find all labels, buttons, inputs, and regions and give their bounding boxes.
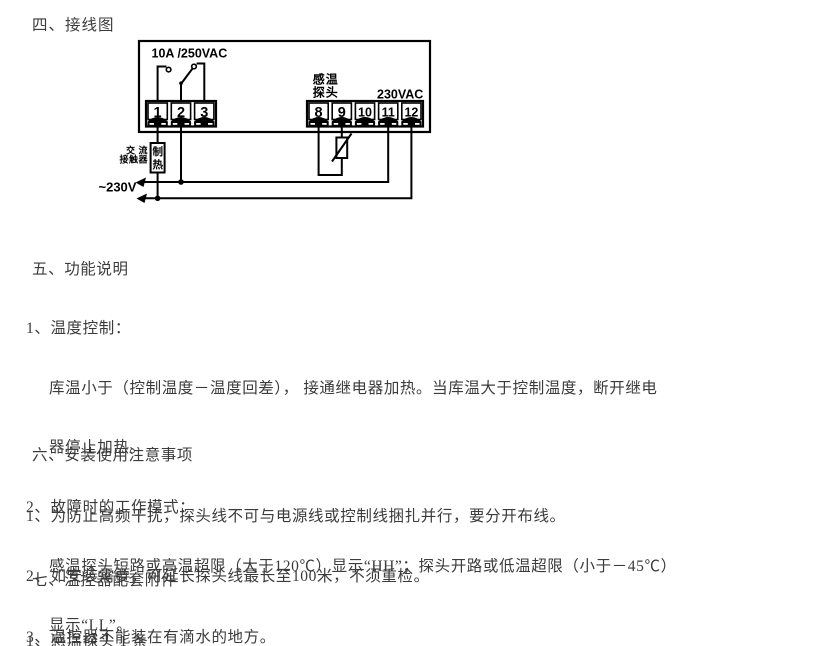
junction-dot — [155, 196, 161, 202]
relay-rating-label: 10A /250VAC — [152, 47, 228, 61]
probe-label-line2: 探头 — [313, 85, 339, 100]
mains-voltage-label: ~230V — [99, 180, 137, 195]
terminal-number: 3 — [200, 105, 208, 121]
terminal-number: 9 — [338, 105, 346, 121]
terminal-number: 12 — [404, 106, 418, 120]
text-line: 库温小于（控制温度－温度回差）， 接通继电器加热。当库温大于控制温度，断开继电 — [0, 377, 817, 400]
text-line: 1、感温探头 1 条 — [0, 630, 817, 646]
terminal-cell: 9 — [332, 103, 352, 126]
terminal-cell: 10 — [355, 103, 375, 126]
contactor-label-line2: 接触器 — [119, 154, 148, 165]
junction-dot — [178, 179, 184, 185]
wire-arrow-icon — [137, 194, 148, 204]
terminal-cell: 3 — [194, 103, 214, 126]
manual-page: 四、接线图 10A /250VAC 感温 探头 230VAC — [0, 0, 817, 646]
terminal-number: 1 — [154, 105, 162, 121]
terminal-number: 11 — [382, 106, 395, 120]
supply-voltage-label: 230VAC — [377, 88, 423, 102]
section-heading: 七、温控器配套附件 — [0, 569, 817, 594]
terminal-cell: 1 — [148, 103, 168, 126]
probe-wiring — [319, 127, 352, 175]
text-line: 1、为防止高频干扰，探头线不可与电源线或控制线捆扎并行，要分开布线。 — [0, 505, 817, 530]
terminal-block-right: 8 9 10 11 — [307, 101, 423, 127]
mains-wiring: 制 热 — [136, 127, 412, 203]
heater-label-char1: 制 — [153, 145, 164, 158]
terminal-block-left: 1 2 3 — [146, 101, 216, 127]
wire-arrow-icon — [136, 178, 147, 188]
terminal-cell: 2 — [171, 103, 191, 126]
heater-label-char2: 热 — [153, 158, 164, 171]
wiring-diagram: 10A /250VAC 感温 探头 230VAC — [0, 0, 460, 215]
terminal-cell: 12 — [401, 103, 421, 126]
terminal-cell: 8 — [309, 103, 329, 126]
terminal-number: 8 — [315, 105, 323, 121]
text-line: 1、温度控制： — [0, 317, 817, 340]
section-heading: 五、功能说明 — [0, 258, 817, 281]
terminal-cell: 11 — [378, 103, 398, 126]
terminal-number: 2 — [177, 105, 185, 121]
terminal-number: 10 — [358, 106, 372, 120]
section-heading: 六、安装使用注意事项 — [0, 444, 817, 469]
section-accessories: 七、温控器配套附件 1、感温探头 1 条 2、安装支架 1 件 3、挡板1件 — [0, 533, 817, 646]
probe-label-line1: 感温 — [313, 72, 339, 87]
